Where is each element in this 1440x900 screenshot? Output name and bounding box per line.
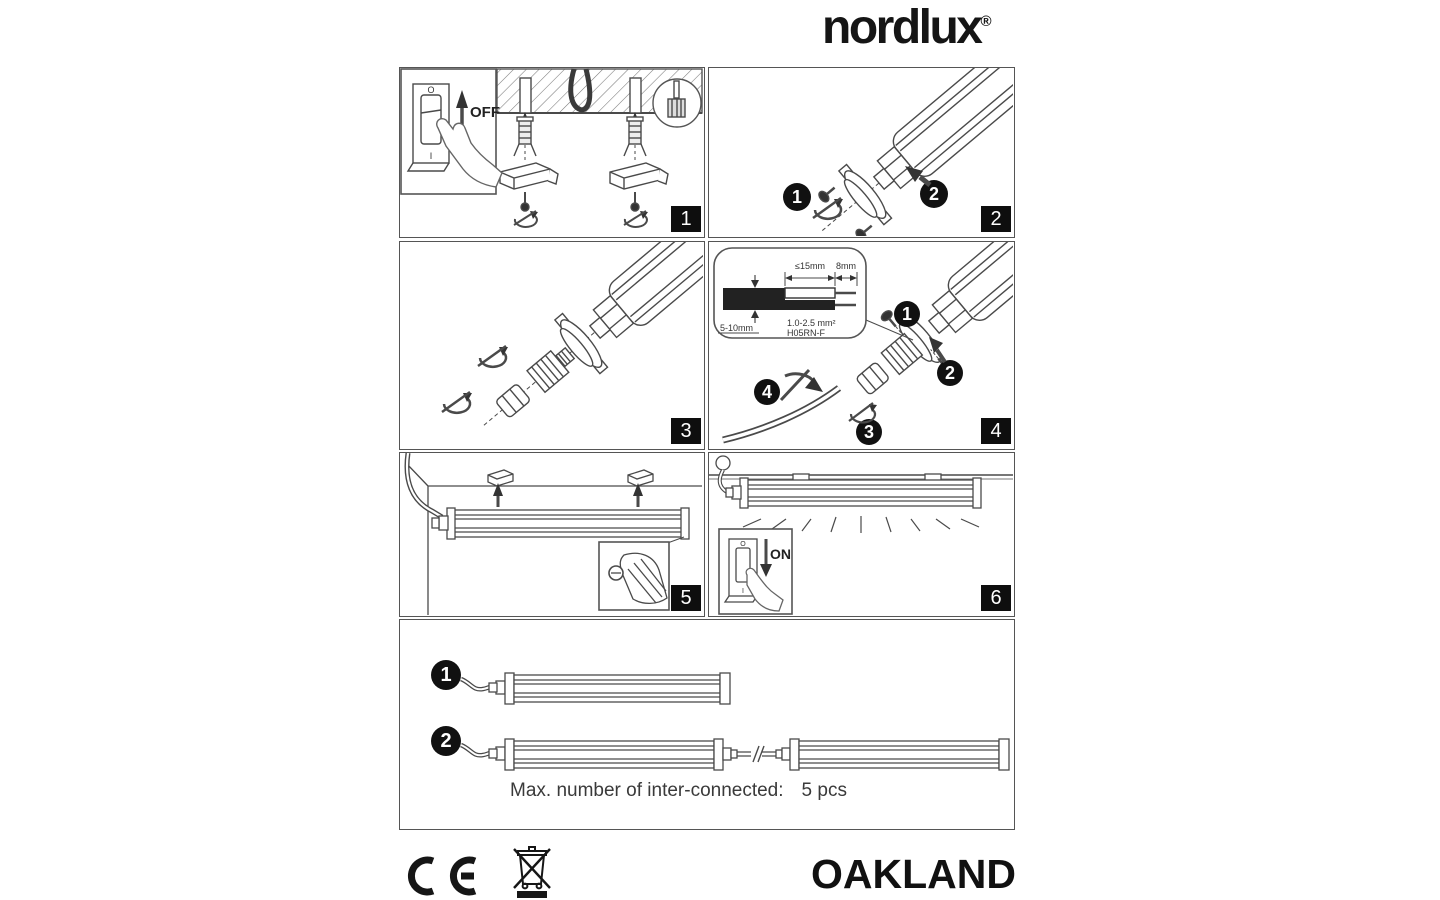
step5-drawing (400, 453, 703, 615)
cable-type-spec: H05RN-F (787, 328, 826, 338)
switch-i-label: I (742, 588, 744, 595)
svg-text:2: 2 (945, 363, 955, 383)
product-name: OAKLAND (716, 851, 1016, 898)
outer-strip-dim: ≤15mm (795, 261, 825, 271)
switch-i-label: I (430, 151, 433, 161)
panel-step-4: ≤15mm 8mm 5-10mm 1.0-2.5 mm² H05RN-F 1 2 (708, 241, 1015, 450)
panel-6-badge: 6 (981, 585, 1011, 611)
step6-drawing: O I ON (709, 453, 1013, 615)
brand-logo: nordlux® (822, 0, 992, 55)
screw-left (514, 192, 538, 227)
switch-on-inset: O I ON (719, 529, 792, 614)
compliance-marks (399, 840, 555, 898)
step-4-marker: 4 (754, 370, 823, 405)
mains-cable (407, 453, 442, 517)
screw-right (624, 192, 648, 227)
step-1-marker: 1 (894, 301, 920, 327)
option-1-marker: 1 (431, 660, 461, 690)
svg-text:2: 2 (929, 184, 939, 204)
ceiling-bracket-right (628, 470, 653, 486)
interconnect-note: Max. number of inter-connected: 5 pcs (510, 780, 847, 802)
interconnect-note-label: Max. number of inter-connected: (510, 780, 784, 802)
cross-section-spec: 1.0-2.5 mm² (787, 318, 836, 328)
svg-text:1: 1 (792, 187, 802, 207)
panel-step-1: O I OFF 1 (399, 67, 705, 238)
wall-plug-right (624, 112, 646, 160)
inner-strip-dim: 8mm (836, 261, 856, 271)
svg-text:3: 3 (864, 422, 874, 442)
panel-step-5: 5 (399, 452, 705, 617)
step2-drawing: 1 2 (709, 68, 1013, 236)
svg-text:4: 4 (762, 382, 772, 402)
mounting-bracket-left (500, 163, 558, 189)
cable-gland-exploded (461, 242, 703, 448)
interconnect-note-value: 5 pcs (802, 780, 847, 802)
step1-drawing: O I OFF (400, 68, 703, 236)
svg-text:1: 1 (902, 304, 912, 324)
mains-cable (723, 388, 839, 440)
switch-o-label: O (427, 85, 434, 95)
panel-step-3: 3 (399, 241, 705, 450)
step-3-marker: 3 (849, 403, 882, 445)
panel-step-2: 1 2 2 (708, 67, 1015, 238)
panel-interconnect: 1 2 (399, 619, 1015, 830)
interconnect-cable (737, 744, 776, 764)
on-label: ON (770, 546, 791, 562)
option-2-fixture-a (489, 739, 737, 770)
ceiling-bracket-left (488, 470, 513, 486)
panel-2-badge: 2 (981, 206, 1011, 232)
panel-3-badge: 3 (671, 418, 701, 444)
turn-arrow-icon (442, 392, 472, 413)
cable-diameter-dim: 5-10mm (720, 323, 753, 333)
brand-name: nordlux (822, 1, 981, 54)
panel-4-badge: 4 (981, 418, 1011, 444)
wall-plug-detail-bubble (653, 79, 701, 127)
panel-1-badge: 1 (671, 206, 701, 232)
wall-plug-left (514, 112, 536, 160)
switch-off-inset: O I OFF (401, 69, 502, 194)
svg-text:1: 1 (440, 664, 451, 686)
gland-cap-nut (495, 383, 531, 418)
option-2-fixture-b (776, 739, 1009, 770)
svg-text:2: 2 (440, 730, 451, 752)
panel-step-6: O I ON 6 (708, 452, 1015, 617)
instruction-sheet: nordlux® (0, 0, 1440, 900)
ce-mark-icon (399, 854, 491, 898)
turn-arrow-icon (478, 346, 508, 367)
light-fixture (432, 508, 689, 539)
off-label: OFF (470, 104, 500, 121)
cable-spec-callout: ≤15mm 8mm 5-10mm 1.0-2.5 mm² H05RN-F (714, 248, 913, 340)
registered-mark: ® (981, 13, 992, 30)
weee-icon (509, 840, 555, 898)
gland-on-cable (854, 334, 923, 398)
switch-o-label: O (740, 541, 746, 548)
step-1-marker: 1 (783, 183, 811, 211)
option-1-fixture (489, 673, 730, 704)
step3-drawing (400, 242, 703, 448)
mounting-bracket-right (610, 163, 668, 189)
option-2-marker: 2 (431, 726, 461, 756)
panel-5-badge: 5 (671, 585, 701, 611)
step4-drawing: ≤15mm 8mm 5-10mm 1.0-2.5 mm² H05RN-F 1 2 (709, 242, 1013, 448)
step-2-marker: 2 (920, 180, 948, 208)
